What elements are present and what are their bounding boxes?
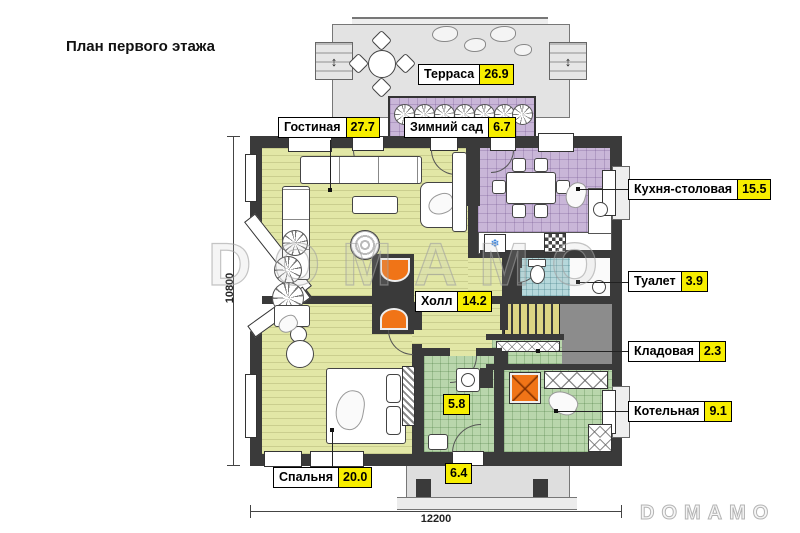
window-bedroom-bottom xyxy=(264,451,302,467)
leader-line xyxy=(578,189,630,190)
dimension-width-label: 12200 xyxy=(406,513,466,525)
wall-lobby-boiler xyxy=(494,356,504,416)
leader-dot xyxy=(328,188,332,192)
dining-chair xyxy=(512,204,526,218)
terrace-stairs-left: ↕ xyxy=(315,42,353,80)
terrace-stairs-right: ↕ xyxy=(549,42,587,80)
stove xyxy=(544,233,566,253)
boiler-shelf xyxy=(588,424,612,452)
room-label-porch: 6.4 xyxy=(445,463,472,484)
dimension-height-label: 10800 xyxy=(224,262,236,314)
window-bedroom-bottom xyxy=(310,451,364,467)
window-top-right xyxy=(538,133,574,152)
toilet-bowl xyxy=(530,265,545,284)
room-label-terrace: Терраса26.9 xyxy=(418,64,514,85)
door-garden-living xyxy=(430,136,458,151)
dimension-tick xyxy=(227,136,240,137)
leader-line xyxy=(556,411,630,412)
fireplace-firebox-icon xyxy=(380,258,410,282)
room-label-toilet: Туалет3.9 xyxy=(628,271,708,292)
dining-table xyxy=(506,172,556,204)
floor-plan-canvas: План первого этажа ↕ ↕ xyxy=(0,0,800,533)
wall-stairs-left xyxy=(500,296,508,330)
terrace-plant xyxy=(464,38,486,52)
pouf xyxy=(350,230,380,260)
wall-lobby-boiler xyxy=(494,428,504,454)
leader-line xyxy=(330,140,331,190)
leader-dot xyxy=(576,280,580,284)
wall-storage-boiler xyxy=(486,364,612,370)
leader-dot xyxy=(330,428,334,432)
coffee-table xyxy=(352,196,398,214)
staircase xyxy=(504,300,560,338)
plant xyxy=(274,256,302,284)
living-cabinet xyxy=(452,152,467,232)
leader-dot xyxy=(576,187,580,191)
room-label-storage: Кладовая2.3 xyxy=(628,341,726,362)
fridge-icon: ❄ xyxy=(490,237,499,250)
round-table xyxy=(286,340,314,368)
kitchen-sink xyxy=(593,202,608,217)
porch-steps xyxy=(397,497,577,510)
window-living-left xyxy=(245,154,257,202)
washing-machine-drum xyxy=(461,373,475,387)
fireplace-firebox-icon xyxy=(380,308,408,330)
leader-dot xyxy=(536,349,540,353)
dining-chair xyxy=(534,158,548,172)
boiler-unit-icon xyxy=(510,373,540,403)
leader-line xyxy=(578,282,630,283)
wall-living-kitchen xyxy=(466,136,480,206)
window-bedroom-left xyxy=(245,374,257,438)
porch-post xyxy=(533,479,548,497)
pillow xyxy=(386,374,401,403)
room-label-bedroom: Спальня20.0 xyxy=(273,467,372,488)
dining-chair xyxy=(534,204,548,218)
lobby-sink xyxy=(428,434,448,450)
room-label-kitchen: Кухня-столовая15.5 xyxy=(628,179,771,200)
room-label-lobby: 5.8 xyxy=(443,394,470,415)
leader-dot xyxy=(554,409,558,413)
wall-hall-lobby xyxy=(422,348,450,356)
room-label-living: Гостиная27.7 xyxy=(278,117,380,138)
terrace-table xyxy=(368,50,396,78)
wall-storage-top xyxy=(486,334,564,340)
sofa xyxy=(300,156,422,184)
watermark-corner: DOMAMO xyxy=(640,502,775,525)
dimension-line-horizontal xyxy=(250,511,622,512)
wardrobe xyxy=(402,366,415,426)
boiler-shelf xyxy=(544,371,608,389)
door-garden-kitchen xyxy=(490,136,516,151)
stairs-arrow-icon: ↕ xyxy=(565,54,572,69)
pillow xyxy=(386,406,401,435)
leader-line xyxy=(332,430,333,468)
dimension-tick xyxy=(250,505,251,518)
stairs-arrow-icon: ↕ xyxy=(331,54,338,69)
dining-chair xyxy=(492,180,506,194)
leader-line xyxy=(538,351,630,352)
terrace-plant xyxy=(490,26,516,42)
lobby-cabinet xyxy=(480,368,493,388)
plant xyxy=(282,230,308,256)
wall-hall-lobby xyxy=(476,348,502,356)
fridge: ❄ xyxy=(484,234,506,253)
room-label-boiler: Котельная9.1 xyxy=(628,401,732,422)
porch-post xyxy=(416,479,431,497)
room-label-wintergarden: Зимний сад6.7 xyxy=(404,117,516,138)
terrace-plant xyxy=(432,26,458,42)
door-terrace xyxy=(352,136,384,151)
dimension-tick xyxy=(227,465,240,466)
dimension-tick xyxy=(621,505,622,518)
page-title: План первого этажа xyxy=(66,38,215,55)
dining-chair xyxy=(512,158,526,172)
room-label-hall: Холл14.2 xyxy=(415,291,492,312)
terrace-plant xyxy=(514,44,532,56)
